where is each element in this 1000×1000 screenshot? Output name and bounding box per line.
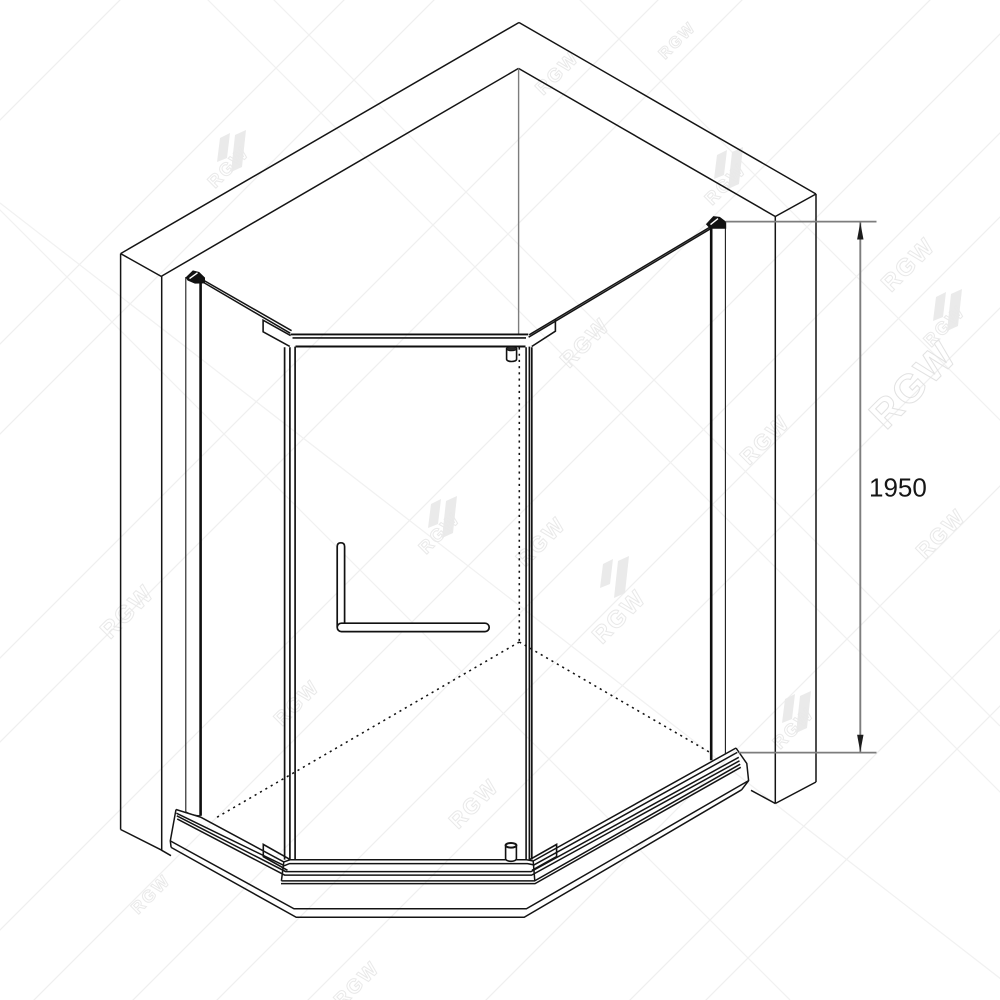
svg-text:1950: 1950 bbox=[869, 473, 927, 503]
